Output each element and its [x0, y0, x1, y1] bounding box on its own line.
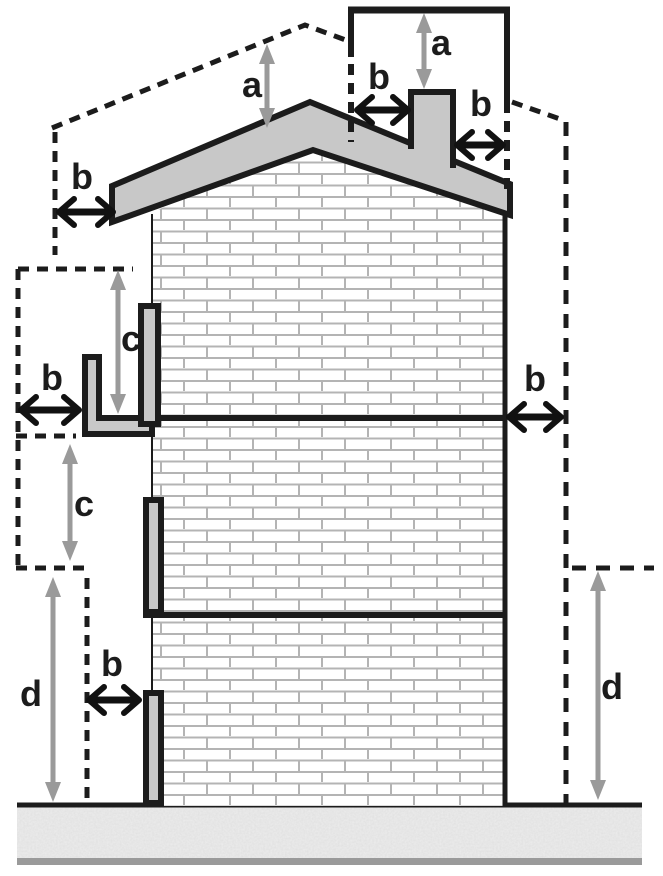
ground — [17, 805, 642, 865]
label-a-chimney: a — [431, 22, 452, 63]
arrow-b-left-of-eave — [59, 199, 113, 225]
shutter-ground-floor — [146, 693, 161, 803]
arrow-b-left-of-chimney — [357, 97, 408, 123]
arrow-a-above-chimney — [416, 13, 432, 89]
brick-wall-face — [152, 148, 505, 806]
label-c-upper: c — [121, 318, 141, 359]
shutter-middle-floor — [146, 500, 161, 612]
arrow-b-left-of-ground-shutter — [89, 687, 139, 713]
diagram-canvas: a a b b b b b b c c d d — [0, 0, 663, 876]
arrow-b-right-of-wall — [509, 404, 561, 430]
arrow-d-left — [45, 577, 61, 802]
ground-speckle-texture — [17, 806, 642, 858]
label-c-lower: c — [74, 483, 94, 524]
dashed-right-diagonal-link — [512, 102, 560, 119]
label-d-right: d — [601, 666, 623, 707]
label-b-wall-right: b — [524, 358, 546, 399]
label-d-left: d — [20, 673, 42, 714]
label-b-ground-shutter: b — [101, 643, 123, 684]
label-b-chimney-right: b — [470, 83, 492, 124]
shutter-upper-floor — [141, 306, 158, 424]
arrow-b-left-of-balcony — [21, 397, 79, 423]
label-a-ridge: a — [242, 64, 263, 105]
label-b-balcony: b — [41, 357, 63, 398]
label-b-eave: b — [71, 156, 93, 197]
building-clearance-diagram: a a b b b b b b c c d d — [0, 0, 663, 876]
ground-baseline-bar — [17, 858, 642, 865]
label-b-chimney-left: b — [368, 56, 390, 97]
building-wall — [143, 148, 505, 806]
arrow-b-right-of-chimney — [457, 132, 503, 158]
